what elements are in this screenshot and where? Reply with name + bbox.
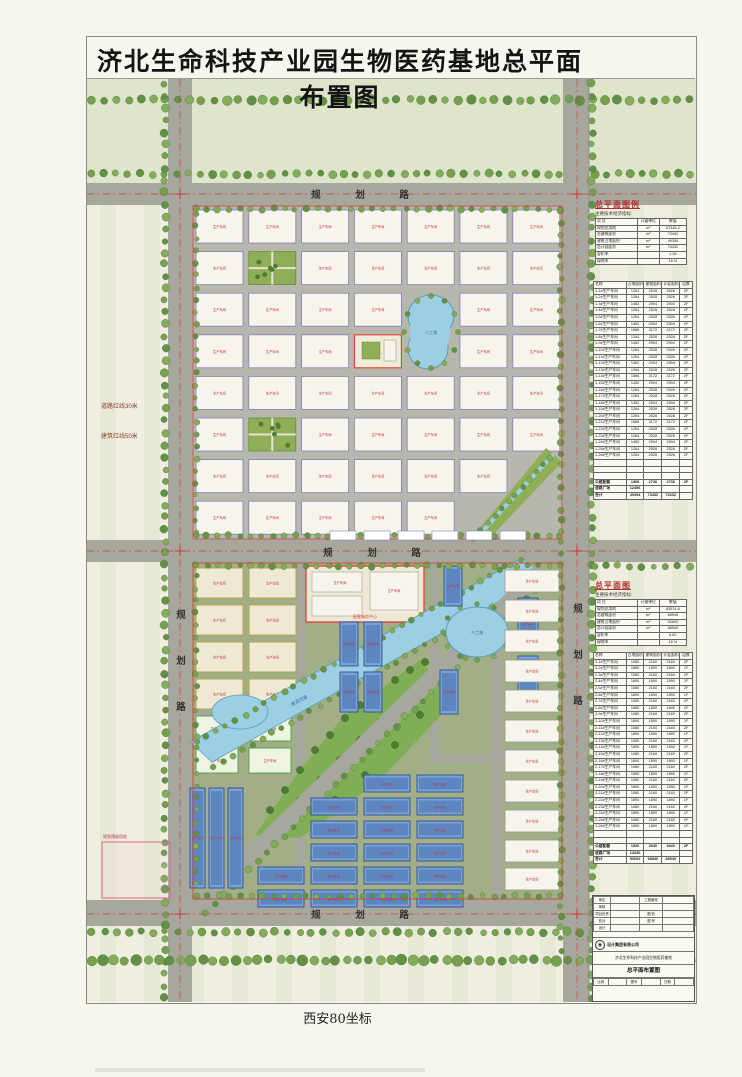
- reserved-land-outline: 规划预留用地: [102, 833, 170, 898]
- svg-text:生产车间: 生产车间: [319, 266, 332, 271]
- svg-text:生产车间: 生产车间: [328, 874, 340, 879]
- svg-text:生产车间: 生产车间: [381, 851, 393, 856]
- svg-text:生产车间: 生产车间: [477, 349, 490, 354]
- svg-text:生产车间: 生产车间: [447, 583, 459, 588]
- svg-text:生产车间: 生产车间: [213, 349, 226, 354]
- svg-text:生产车间: 生产车间: [266, 349, 279, 354]
- svg-text:生产车间: 生产车间: [530, 266, 543, 271]
- svg-text:划: 划: [176, 655, 186, 667]
- section2-building-schedule: 名称占地面积(m²)建筑面积(m²)计容面积(m²)层数2-1#生产车间1080…: [593, 652, 693, 864]
- svg-text:配套服务中心: 配套服务中心: [353, 613, 377, 619]
- svg-text:生产车间: 生产车间: [477, 266, 490, 271]
- svg-text:生产车间: 生产车间: [443, 689, 455, 694]
- svg-text:生产车间: 生产车间: [229, 835, 241, 840]
- schedule-table-north: 名称占地面积(m²)建筑面积(m²)计容面积(m²)层数1-1#生产车间1264…: [593, 281, 693, 500]
- drawing-sheet: 济北生命科技产业园生物医药基地总平面布置图 生产车间生产车间生产车间生产车间生产…: [0, 0, 742, 1077]
- svg-text:规 划 路: 规 划 路: [323, 547, 437, 559]
- svg-text:生产车间: 生产车间: [213, 224, 226, 229]
- svg-text:生产车间: 生产车间: [530, 224, 543, 229]
- svg-text:规 划 路: 规 划 路: [311, 189, 425, 201]
- svg-text:生产车间: 生产车间: [266, 390, 279, 395]
- svg-text:生产车间: 生产车间: [319, 474, 332, 479]
- svg-text:生产车间: 生产车间: [319, 307, 332, 312]
- svg-text:生产车间: 生产车间: [526, 849, 539, 854]
- svg-text:生产车间: 生产车间: [526, 877, 539, 882]
- south-service-block: 生产车间生产车间配套服务中心: [306, 566, 424, 622]
- svg-text:规: 规: [573, 603, 583, 615]
- svg-text:生产车间: 生产车间: [372, 432, 385, 437]
- svg-text:生产车间: 生产车间: [381, 782, 393, 787]
- svg-text:生产车间: 生产车间: [434, 874, 446, 879]
- svg-text:生产车间: 生产车间: [530, 349, 543, 354]
- svg-text:人工湖: 人工湖: [425, 329, 437, 335]
- svg-text:生产车间: 生产车间: [434, 828, 446, 833]
- svg-text:生产车间: 生产车间: [213, 692, 226, 697]
- svg-text:生产车间: 生产车间: [372, 307, 385, 312]
- svg-text:生产车间: 生产车间: [424, 432, 437, 437]
- svg-text:生产车间: 生产车间: [213, 618, 226, 623]
- svg-text:生产车间: 生产车间: [213, 307, 226, 312]
- svg-text:生产车间: 生产车间: [213, 474, 226, 479]
- svg-text:生产车间: 生产车间: [213, 432, 226, 437]
- svg-text:生产车间: 生产车间: [319, 224, 332, 229]
- svg-text:生产车间: 生产车间: [367, 689, 379, 694]
- svg-text:生产车间: 生产车间: [275, 874, 287, 879]
- svg-text:划: 划: [573, 649, 583, 661]
- schedule-table-south: 名称占地面积(m²)建筑面积(m²)计容面积(m²)层数2-1#生产车间1080…: [593, 652, 693, 864]
- section2-note: 主要技术经济指标:: [595, 592, 632, 598]
- svg-text:生产车间: 生产车间: [319, 390, 332, 395]
- svg-text:生产车间: 生产车间: [372, 515, 385, 520]
- svg-text:生产车间: 生产车间: [526, 789, 539, 794]
- svg-text:生产车间: 生产车间: [434, 782, 446, 787]
- svg-text:路: 路: [176, 701, 186, 713]
- svg-text:生产车间: 生产车间: [477, 474, 490, 479]
- section1-heading: 总平面图例: [595, 199, 640, 210]
- company-logo-icon: ◉: [595, 940, 605, 950]
- svg-text:生产车间: 生产车间: [367, 641, 379, 646]
- svg-text:生产车间: 生产车间: [526, 669, 539, 674]
- project-name: 济北生命科技产业园生物医药基地: [593, 952, 694, 965]
- svg-text:生产车间: 生产车间: [530, 432, 543, 437]
- indicator-table-north: 项 目计量单位数值规划总用地m²57316.2总建筑面积m²73432建筑占地面…: [595, 218, 687, 265]
- svg-text:生产车间: 生产车间: [266, 618, 279, 623]
- svg-text:规: 规: [176, 609, 186, 621]
- svg-text:生产车间: 生产车间: [213, 515, 226, 520]
- svg-text:建筑红线50米: 建筑红线50米: [101, 432, 138, 440]
- svg-text:生产车间: 生产车间: [424, 515, 437, 520]
- svg-text:生产车间: 生产车间: [388, 588, 401, 593]
- svg-text:生产车间: 生产车间: [526, 609, 539, 614]
- svg-text:路: 路: [573, 695, 583, 707]
- section2-indicator-table: 项 目计量单位数值规划总用地m²83574.6总建筑面积m²68940建筑占地面…: [595, 599, 687, 646]
- svg-text:生产车间: 生产车间: [319, 349, 332, 354]
- svg-text:人工湖: 人工湖: [471, 629, 483, 635]
- svg-text:生产车间: 生产车间: [343, 689, 355, 694]
- company-name: 设计集团有限公司: [607, 942, 639, 947]
- svg-text:生产车间: 生产车间: [266, 224, 279, 229]
- svg-text:生产车间: 生产车间: [372, 266, 385, 271]
- svg-text:生产车间: 生产车间: [477, 224, 490, 229]
- svg-text:生产车间: 生产车间: [424, 266, 437, 271]
- svg-text:生产车间: 生产车间: [264, 758, 277, 763]
- indicator-table-south: 项 目计量单位数值规划总用地m²83574.6总建筑面积m²68940建筑占地面…: [595, 599, 687, 646]
- svg-text:生产车间: 生产车间: [526, 759, 539, 764]
- title-block: 审定工程编号审核项目负责图 别校对图 号设计◉设计集团有限公司济北生命科技产业园…: [592, 895, 695, 1002]
- svg-text:生产车间: 生产车间: [526, 729, 539, 734]
- design-company-row: ◉设计集团有限公司: [593, 938, 694, 952]
- svg-text:生产车间: 生产车间: [319, 432, 332, 437]
- title-divider: [87, 78, 695, 79]
- svg-text:生产车间: 生产车间: [266, 515, 279, 520]
- svg-text:生产车间: 生产车间: [477, 432, 490, 437]
- section1-building-schedule: 名称占地面积(m²)建筑面积(m²)计容面积(m²)层数1-1#生产车间1264…: [593, 281, 693, 500]
- section1-note: 主要技术经济指标:: [595, 211, 632, 217]
- svg-text:生产车间: 生产车间: [343, 641, 355, 646]
- svg-text:道路红线30米: 道路红线30米: [101, 402, 138, 410]
- titleblock-signature-grid: 审定工程编号审核项目负责图 别校对图 号设计: [593, 896, 694, 932]
- svg-text:生产车间: 生产车间: [334, 580, 347, 585]
- south-right-buildings: 生产车间生产车间生产车间生产车间生产车间生产车间生产车间生产车间生产车间生产车间…: [505, 570, 559, 890]
- svg-text:生产车间: 生产车间: [530, 307, 543, 312]
- svg-text:生产车间: 生产车间: [319, 515, 332, 520]
- svg-text:生产车间: 生产车间: [434, 805, 446, 810]
- svg-text:生产车间: 生产车间: [213, 266, 226, 271]
- svg-text:生产车间: 生产车间: [424, 474, 437, 479]
- section1-indicator-table: 项 目计量单位数值规划总用地m²57316.2总建筑面积m²73432建筑占地面…: [595, 218, 687, 265]
- svg-text:生产车间: 生产车间: [210, 835, 222, 840]
- svg-text:生产车间: 生产车间: [328, 805, 340, 810]
- svg-text:生产车间: 生产车间: [372, 474, 385, 479]
- svg-text:生产车间: 生产车间: [381, 828, 393, 833]
- coordinate-system-caption: 西安80坐标: [86, 1008, 589, 1027]
- svg-text:生产车间: 生产车间: [266, 307, 279, 312]
- svg-text:生产车间: 生产车间: [328, 828, 340, 833]
- svg-text:规划预留用地: 规划预留用地: [103, 833, 127, 839]
- svg-text:生产车间: 生产车间: [434, 851, 446, 856]
- svg-text:生产车间: 生产车间: [526, 579, 539, 584]
- svg-text:生产车间: 生产车间: [213, 655, 226, 660]
- svg-text:生产车间: 生产车间: [424, 224, 437, 229]
- titleblock-scale-row: 比例图号日期: [593, 978, 694, 986]
- svg-text:生产车间: 生产车间: [328, 851, 340, 856]
- svg-text:生产车间: 生产车间: [213, 581, 226, 586]
- svg-text:生产车间: 生产车间: [526, 639, 539, 644]
- svg-text:生产车间: 生产车间: [266, 581, 279, 586]
- svg-text:生产车间: 生产车间: [266, 655, 279, 660]
- drawing-name: 总平面布置图: [593, 965, 694, 978]
- svg-text:生产车间: 生产车间: [477, 307, 490, 312]
- section2-heading: 总平面图: [595, 580, 631, 591]
- watermark-strip: [95, 1068, 425, 1072]
- svg-text:生产车间: 生产车间: [530, 390, 543, 395]
- svg-text:生产车间: 生产车间: [381, 805, 393, 810]
- svg-text:生产车间: 生产车间: [381, 874, 393, 879]
- svg-text:生产车间: 生产车间: [372, 390, 385, 395]
- north-service-block: [354, 335, 401, 368]
- svg-text:生产车间: 生产车间: [477, 390, 490, 395]
- svg-text:生产车间: 生产车间: [526, 819, 539, 824]
- svg-text:生产车间: 生产车间: [372, 224, 385, 229]
- svg-text:生产车间: 生产车间: [266, 474, 279, 479]
- svg-text:生产车间: 生产车间: [424, 390, 437, 395]
- svg-text:生产车间: 生产车间: [213, 390, 226, 395]
- svg-text:规 划 路: 规 划 路: [311, 909, 425, 921]
- svg-text:生产车间: 生产车间: [526, 699, 539, 704]
